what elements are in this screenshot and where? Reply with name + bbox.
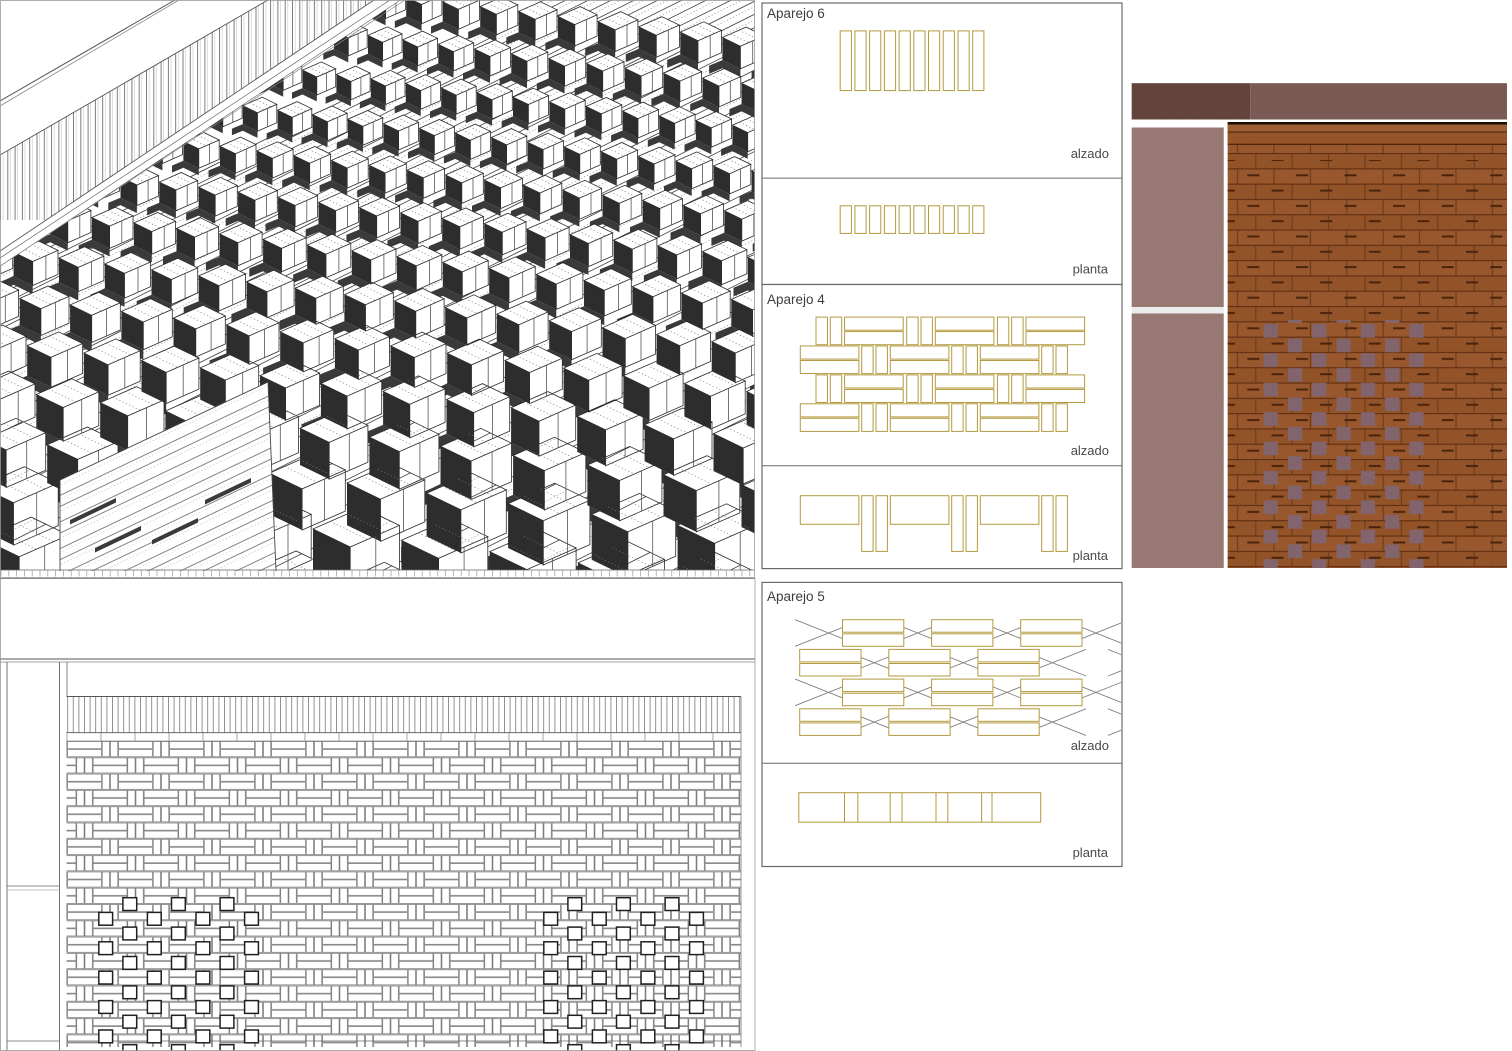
- svg-text:alzado: alzado: [1071, 443, 1109, 458]
- svg-text:alzado: alzado: [1071, 738, 1109, 753]
- svg-text:planta: planta: [1073, 548, 1109, 563]
- svg-text:planta: planta: [1073, 262, 1109, 277]
- svg-text:Aparejo 4: Aparejo 4: [767, 292, 825, 307]
- svg-text:Aparejo 5: Aparejo 5: [767, 589, 825, 604]
- svg-text:Aparejo 6: Aparejo 6: [767, 6, 825, 21]
- svg-text:alzado: alzado: [1071, 146, 1109, 161]
- svg-text:planta: planta: [1073, 845, 1109, 860]
